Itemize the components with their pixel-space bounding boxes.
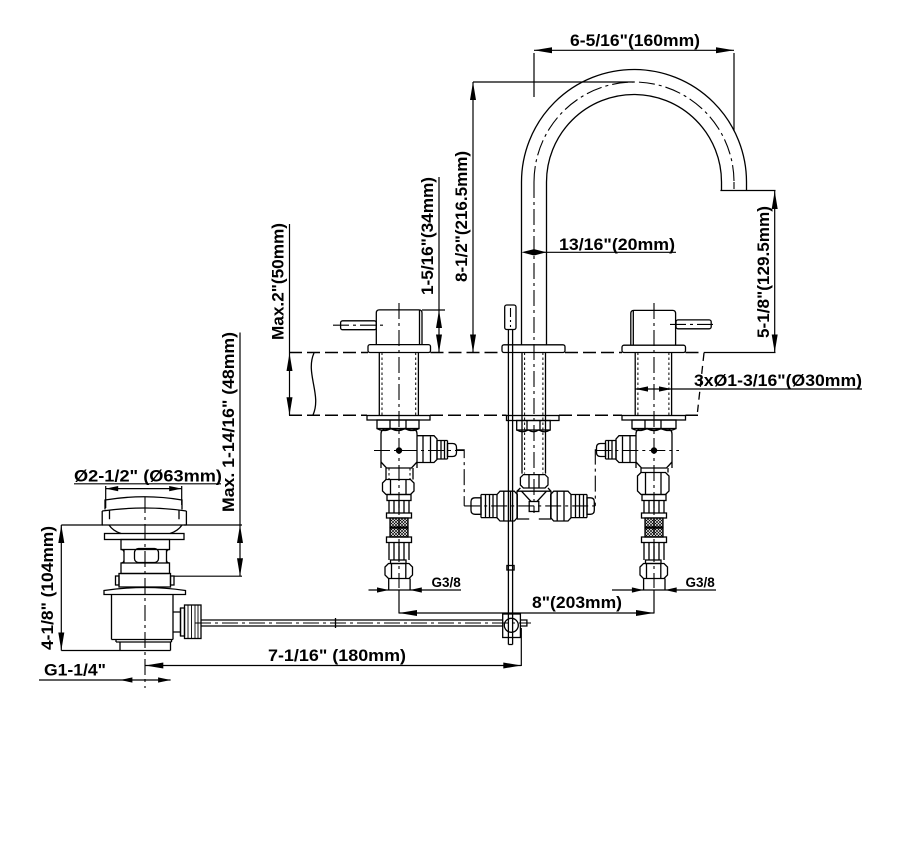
svg-text:G3/8: G3/8 [432, 575, 462, 590]
svg-text:5-1/8"(129.5mm): 5-1/8"(129.5mm) [754, 206, 773, 338]
svg-text:4-1/8" (104mm): 4-1/8" (104mm) [38, 526, 57, 650]
svg-text:7-1/16" (180mm): 7-1/16" (180mm) [268, 646, 406, 665]
svg-text:1-5/16"(34mm): 1-5/16"(34mm) [418, 177, 437, 295]
svg-text:8"(203mm): 8"(203mm) [532, 593, 622, 612]
svg-text:G1-1/4": G1-1/4" [44, 661, 106, 680]
svg-text:Ø2-1/2" (Ø63mm): Ø2-1/2" (Ø63mm) [74, 467, 222, 486]
svg-text:G3/8: G3/8 [686, 575, 716, 590]
svg-text:13/16"(20mm): 13/16"(20mm) [559, 235, 675, 254]
svg-text:6-5/16"(160mm): 6-5/16"(160mm) [570, 31, 700, 50]
svg-text:8-1/2"(216.5mm): 8-1/2"(216.5mm) [452, 151, 471, 282]
svg-text:Max.2"(50mm): Max.2"(50mm) [269, 223, 288, 340]
svg-text:3xØ1-3/16"(Ø30mm): 3xØ1-3/16"(Ø30mm) [694, 371, 862, 390]
